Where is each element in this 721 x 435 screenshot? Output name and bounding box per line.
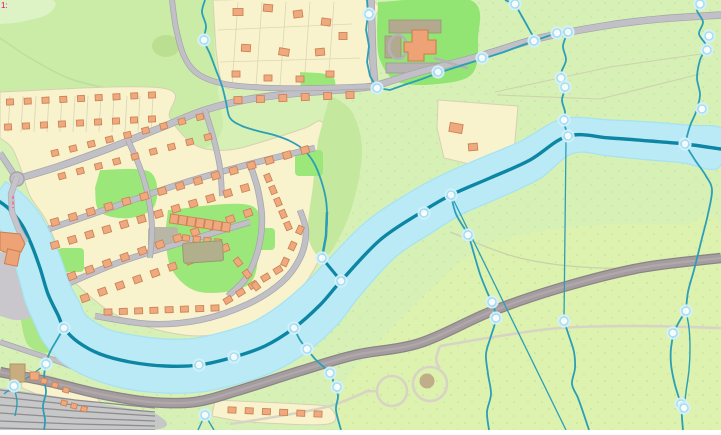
svg-text:1:: 1: (1, 1, 8, 10)
